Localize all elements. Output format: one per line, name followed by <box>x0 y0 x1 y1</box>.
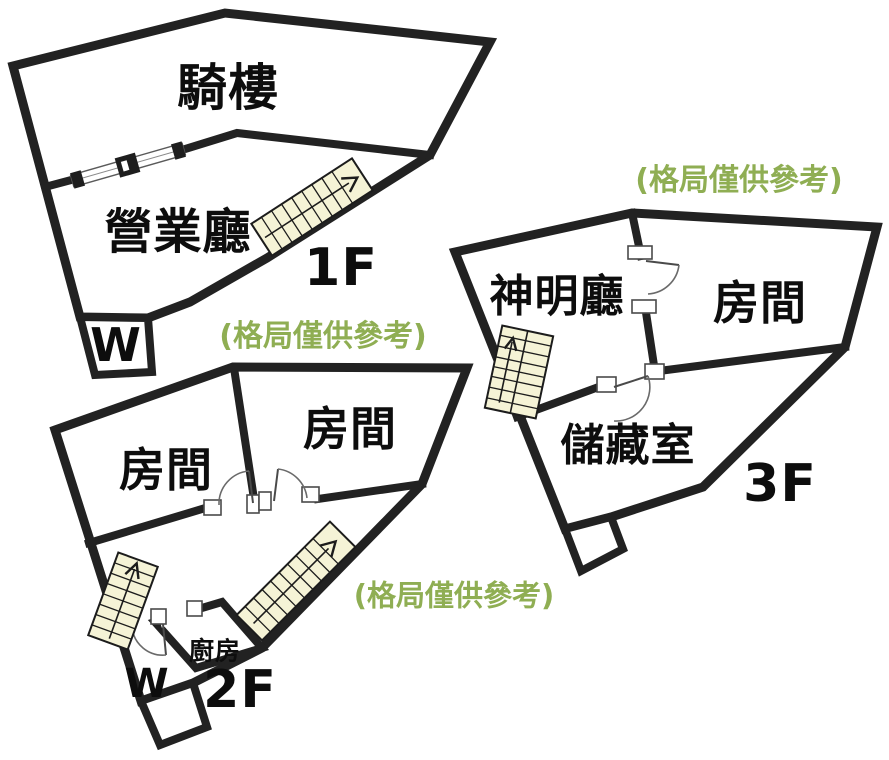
disclaimer-note-3f: (格局僅供參考) <box>635 166 842 196</box>
room-label-2f-right: 房間 <box>303 406 397 452</box>
room-label-shrine-hall-3f: 神明廳 <box>490 275 625 319</box>
room-label-arcade-1f: 騎樓 <box>177 63 279 113</box>
disclaimer-note-2f: (格局僅供參考) <box>354 582 555 611</box>
room-label-2f-left: 房間 <box>119 447 213 493</box>
room-label-business-hall-1f: 營業廳 <box>104 208 251 256</box>
room-label-3f-room: 房間 <box>713 280 807 326</box>
floorplan-canvas: 騎樓 營業廳 1F W (格局僅供參考) 房間 房間 廚房 W 2F (格局僅供… <box>0 0 889 760</box>
wc-label-2f: W <box>124 664 169 704</box>
floorplan-linework <box>0 0 889 760</box>
disclaimer-note-1f: (格局僅供參考) <box>219 322 426 352</box>
floor-label-2f: 2F <box>203 664 277 716</box>
wc-label-1f: W <box>90 322 142 368</box>
room-label-storage-3f: 儲藏室 <box>561 424 696 468</box>
notch-box-3f <box>565 517 623 571</box>
floor-label-3f: 3F <box>743 458 817 510</box>
floor-label-1f: 1F <box>304 242 378 294</box>
